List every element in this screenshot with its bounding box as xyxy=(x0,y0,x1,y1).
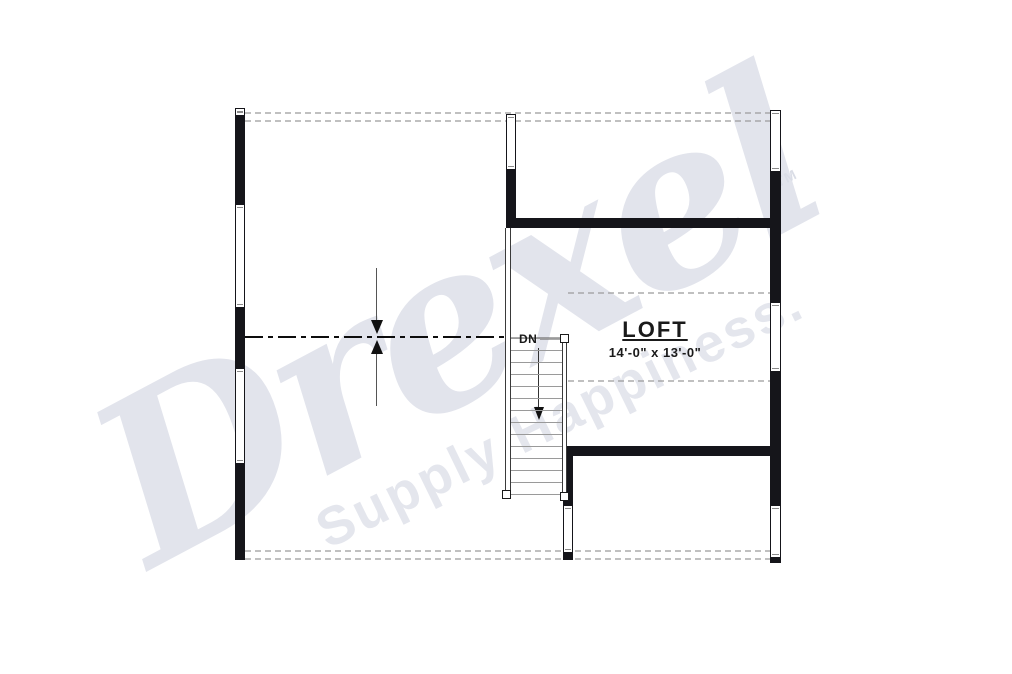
wall-segment xyxy=(770,172,781,302)
wall-segment xyxy=(235,115,245,204)
window-symbol xyxy=(563,505,573,553)
window-symbol xyxy=(235,368,245,464)
height-indicator-arrow-up-icon xyxy=(371,340,383,354)
height-indicator-arrow-down-icon xyxy=(371,320,383,334)
railing-post xyxy=(560,334,569,343)
railing-post xyxy=(502,490,511,499)
staircase-treads xyxy=(511,338,563,499)
wall-segment xyxy=(235,308,245,368)
wall-segment xyxy=(235,464,245,560)
wall-segment xyxy=(770,557,781,563)
window-symbol xyxy=(770,505,781,558)
room-name: LOFT xyxy=(575,318,735,342)
wall-segment xyxy=(563,446,781,456)
stair-railing xyxy=(562,338,567,498)
wall-segment xyxy=(506,218,781,228)
wall-segment xyxy=(770,372,781,505)
floor-plan-page: Drexel Supply Happiness. TM xyxy=(0,0,1012,674)
room-label-group: LOFT 14'-0" x 13'-0" xyxy=(575,318,735,360)
window-symbol xyxy=(506,114,516,170)
window-symbol xyxy=(770,302,781,372)
stairs-down-label: DN xyxy=(519,332,537,346)
wall-segment xyxy=(563,553,573,560)
window-symbol xyxy=(770,110,781,172)
window-symbol xyxy=(235,204,245,308)
railing-post xyxy=(560,492,569,501)
room-dimensions: 14'-0" x 13'-0" xyxy=(575,345,735,360)
